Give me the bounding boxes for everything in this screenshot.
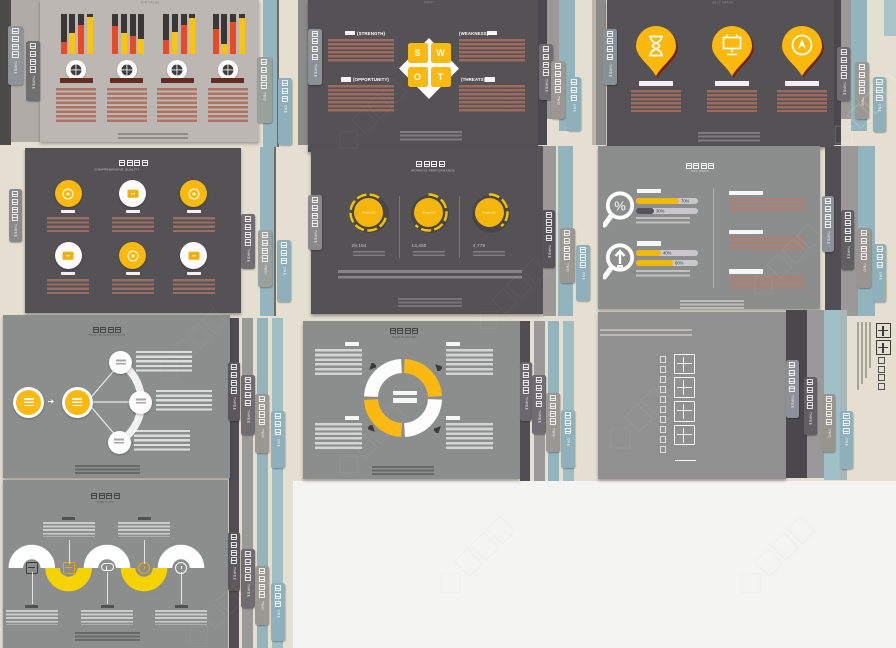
svg-text:%: % [614, 199, 626, 214]
